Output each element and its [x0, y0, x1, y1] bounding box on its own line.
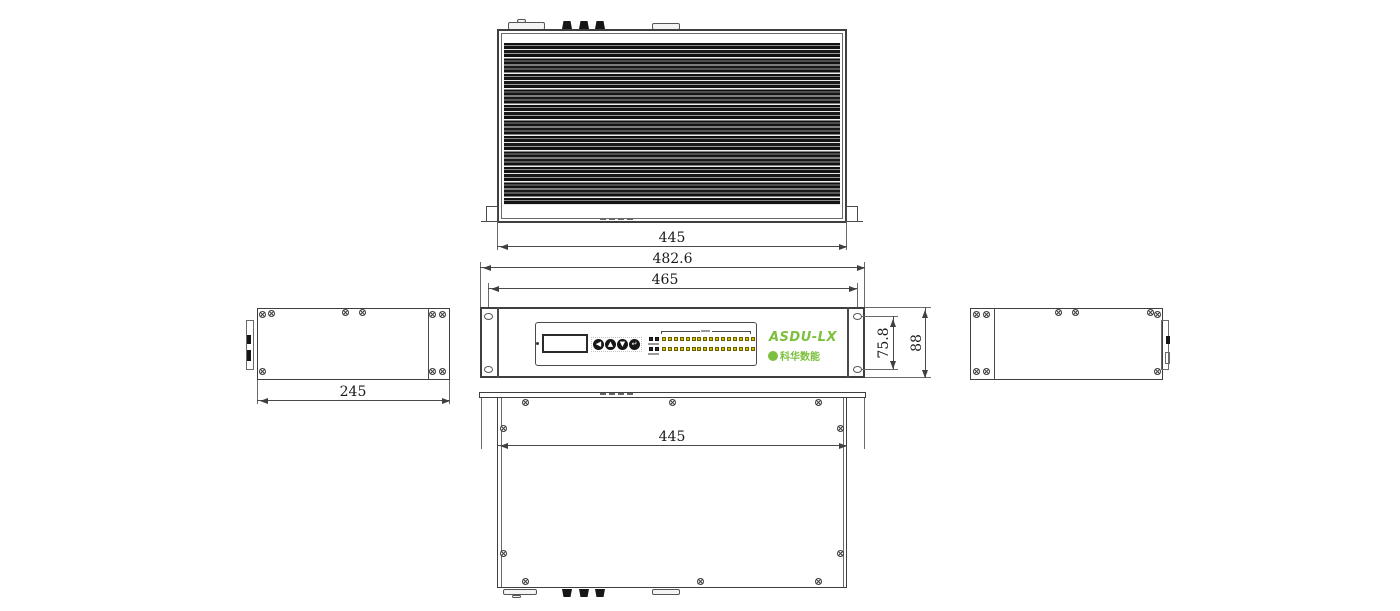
screw-icon: [429, 368, 436, 375]
channel-led: [703, 347, 707, 351]
channel-led: [721, 337, 725, 341]
channel-led: [739, 347, 743, 351]
db-connector: [652, 589, 680, 595]
channel-led: [733, 337, 737, 341]
screw-icon: [837, 425, 844, 432]
screw-icon: [1154, 311, 1161, 318]
channel-led: [703, 337, 707, 341]
terminal-block-tab: [512, 595, 521, 598]
antenna-connector: [562, 21, 572, 29]
screw-icon: [439, 311, 446, 318]
mounting-hole: [484, 366, 493, 373]
channel-led: [697, 337, 701, 341]
antenna-connector: [579, 589, 589, 597]
status-led: [655, 347, 659, 351]
side-connector-bracket: [1165, 352, 1170, 364]
antenna-connector: [562, 589, 572, 597]
status-led: [649, 337, 653, 341]
side-connector-bump: [247, 350, 251, 361]
status-led: [655, 337, 659, 341]
side-ear-plate: [246, 320, 254, 370]
enter-button[interactable]: ↵: [629, 339, 640, 350]
screw-icon: [500, 425, 507, 432]
screw-icon: [359, 309, 366, 316]
mounting-ear: [486, 206, 498, 222]
screw-icon: [1072, 309, 1079, 316]
screw-icon: [815, 399, 822, 406]
left-side-body: [257, 308, 450, 380]
screw-icon: [342, 309, 349, 316]
channel-led: [733, 347, 737, 351]
lcd-display: [542, 334, 588, 353]
screw-icon: [268, 310, 275, 317]
channel-led: [692, 337, 696, 341]
screw-icon: [522, 399, 529, 406]
antenna-connector: [579, 21, 589, 29]
mounting-ear: [846, 206, 858, 222]
channel-led: [674, 347, 678, 351]
dimension-label: 465: [630, 273, 700, 287]
screw-icon: [983, 311, 990, 318]
side-connector-bump: [1166, 336, 1170, 344]
channel-led: [674, 337, 678, 341]
heatsink-fins: [504, 43, 840, 205]
led-label-text: [648, 343, 659, 345]
dimension-label: 445: [637, 430, 707, 444]
channel-led: [668, 347, 672, 351]
channel-led: [751, 337, 755, 341]
screw-icon: [1154, 368, 1161, 375]
led-array: [648, 334, 756, 358]
screw-icon: [973, 368, 980, 375]
status-led: [649, 347, 653, 351]
channel-led: [680, 347, 684, 351]
bottom-view-body: [497, 397, 847, 588]
screw-icon: [259, 311, 266, 318]
channel-led: [727, 347, 731, 351]
screw-icon: [439, 368, 446, 375]
channel-led: [662, 337, 666, 341]
screw-icon: [669, 399, 676, 406]
right-side-body: [970, 308, 1163, 380]
screw-icon: [500, 550, 507, 557]
screw-icon: [1055, 309, 1062, 316]
channel-led: [715, 337, 719, 341]
dimension-label: 75.8: [877, 323, 891, 363]
screw-icon: [259, 368, 266, 375]
left-button[interactable]: ◀: [593, 339, 604, 350]
channel-led: [692, 347, 696, 351]
channel-led: [680, 337, 684, 341]
up-button[interactable]: ▲: [605, 339, 616, 350]
screw-icon: [983, 368, 990, 375]
mounting-hole: [484, 313, 493, 320]
channel-led: [739, 337, 743, 341]
brand-logo: 科华数能: [768, 348, 820, 363]
model-text: ASDU-LX: [769, 330, 837, 345]
led-label-text: [648, 353, 659, 355]
screw-icon: [973, 311, 980, 318]
dimension-drawing: 445 482.6 465: [0, 0, 1400, 611]
channel-led: [686, 337, 690, 341]
channel-led: [662, 347, 666, 351]
channel-led: [745, 337, 749, 341]
channel-led: [686, 347, 690, 351]
channel-led: [727, 337, 731, 341]
channel-led: [745, 347, 749, 351]
channel-led: [668, 337, 672, 341]
channel-led: [697, 347, 701, 351]
down-button[interactable]: ▼: [617, 339, 628, 350]
screw-icon: [837, 550, 844, 557]
power-led: [536, 342, 539, 345]
channel-led: [709, 337, 713, 341]
channel-led: [721, 347, 725, 351]
channel-led: [715, 347, 719, 351]
channel-led: [751, 347, 755, 351]
dimension-label: 88: [910, 323, 924, 363]
nav-button-group: ◀ ▲ ▼ ↵: [591, 337, 642, 352]
screw-icon: [1147, 309, 1154, 316]
antenna-connector: [595, 589, 605, 597]
channel-led: [709, 347, 713, 351]
dimension-label: 482.6: [630, 252, 715, 266]
dimension-label: 445: [637, 231, 707, 245]
screw-icon: [429, 311, 436, 318]
brand-disc-icon: [768, 351, 778, 361]
screw-icon: [522, 578, 529, 585]
terminal-block-tab: [517, 19, 526, 23]
brand-text: 科华数能: [780, 348, 820, 363]
bracket-caption: [701, 330, 710, 332]
side-connector-bump: [247, 335, 251, 344]
dimension-label: 245: [318, 385, 388, 399]
antenna-connector: [595, 21, 605, 29]
screw-icon: [815, 578, 822, 585]
screw-icon: [697, 578, 704, 585]
